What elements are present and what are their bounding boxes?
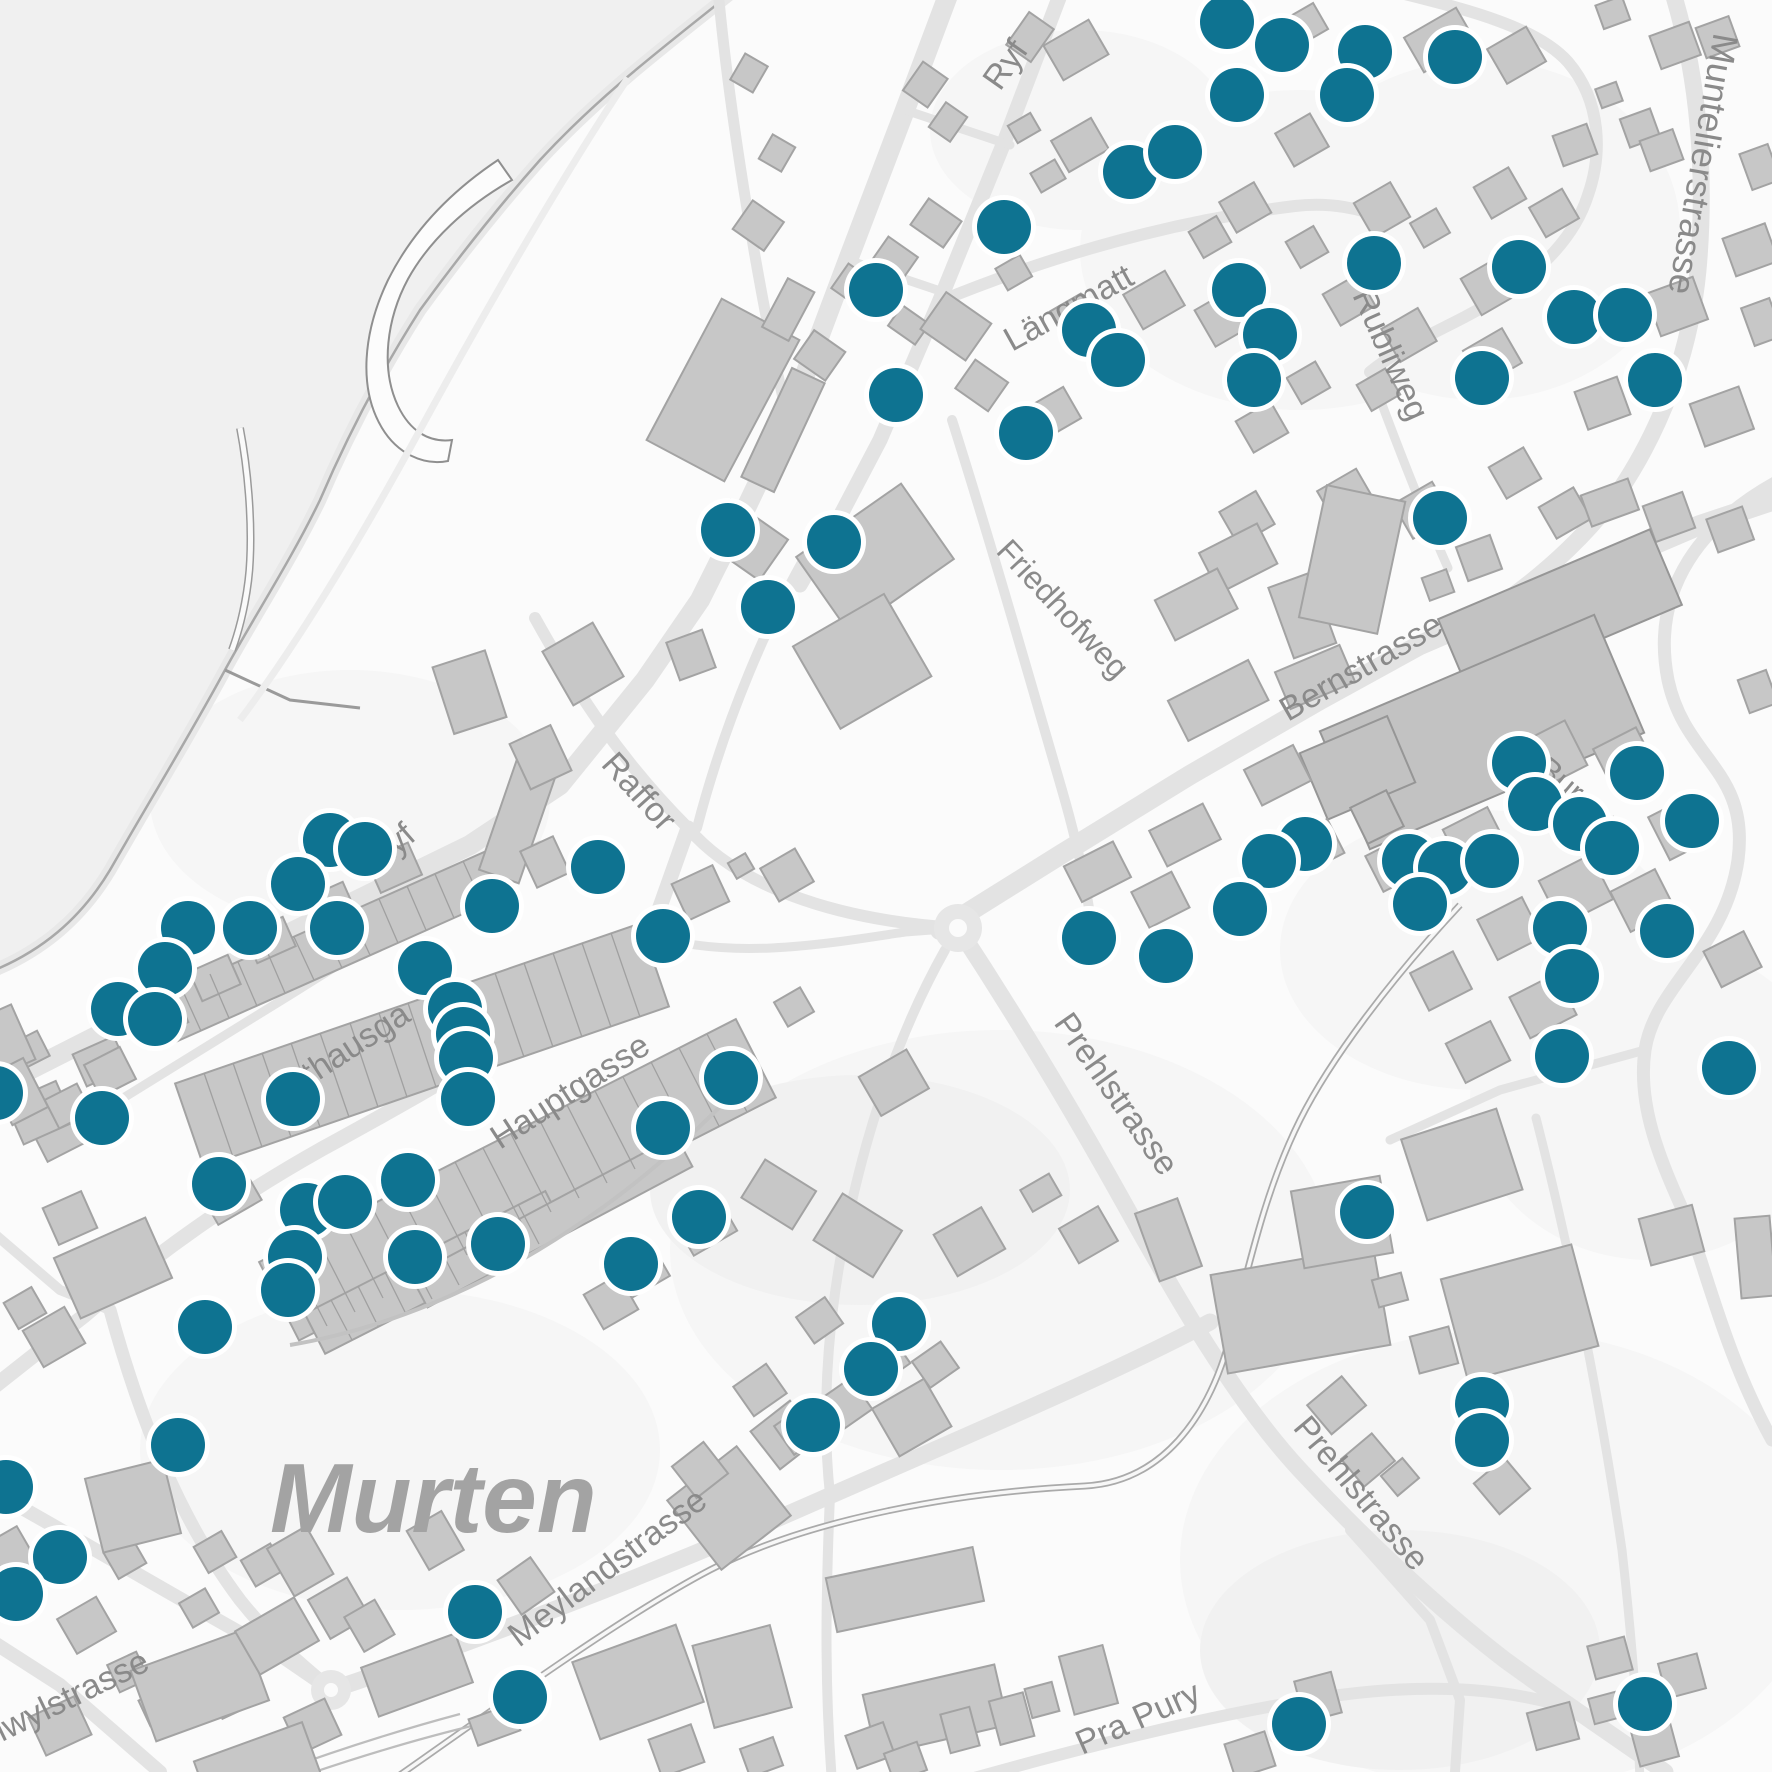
svg-text:Murten: Murten: [270, 1443, 597, 1553]
